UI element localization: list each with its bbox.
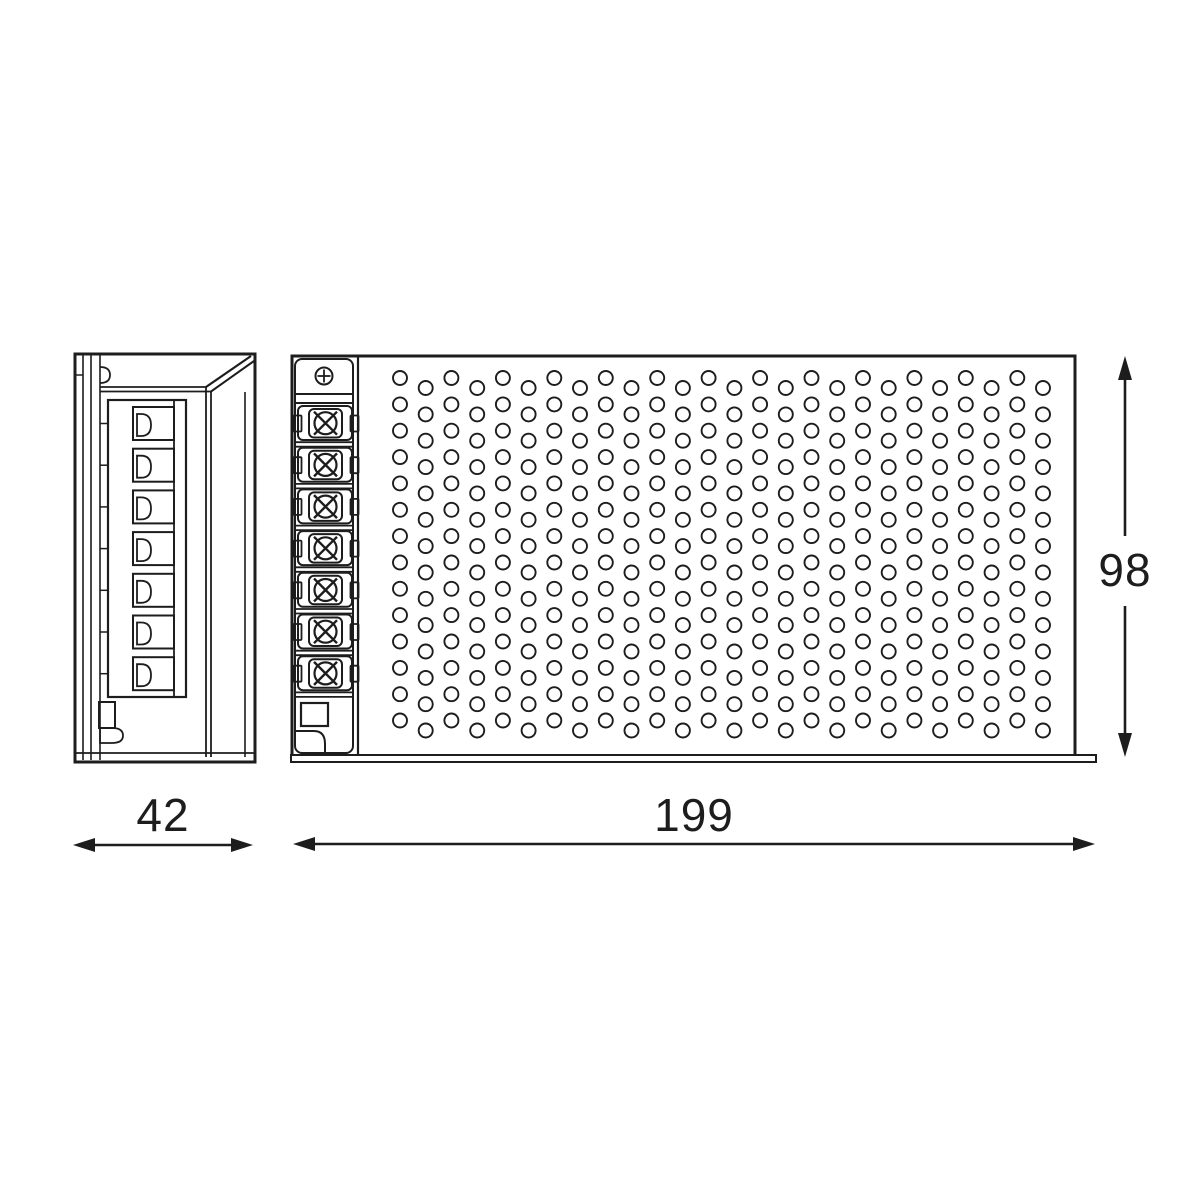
vent-hole xyxy=(625,671,639,685)
vent-hole xyxy=(753,424,767,438)
vent-hole xyxy=(985,724,999,738)
side-view xyxy=(75,354,255,762)
vent-hole xyxy=(393,476,407,490)
vent-hole xyxy=(1036,434,1050,448)
vent-hole xyxy=(599,503,613,517)
vent-hole xyxy=(599,714,613,728)
vent-hole xyxy=(907,635,921,649)
vent-hole xyxy=(805,529,819,543)
vent-hole xyxy=(727,381,741,395)
vent-hole xyxy=(882,460,896,474)
vent-hole xyxy=(830,724,844,738)
vent-hole xyxy=(702,687,716,701)
vent-hole xyxy=(444,397,458,411)
vent-hole xyxy=(753,635,767,649)
vent-hole xyxy=(547,424,561,438)
vent-hole xyxy=(573,486,587,500)
vent-hole xyxy=(959,687,973,701)
vent-hole xyxy=(522,592,536,606)
vent-hole xyxy=(985,697,999,711)
vent-hole xyxy=(522,618,536,632)
vent-hole xyxy=(393,635,407,649)
vent-hole xyxy=(625,434,639,448)
vent-hole xyxy=(676,460,690,474)
vent-hole xyxy=(985,618,999,632)
vent-hole xyxy=(779,486,793,500)
vent-hole xyxy=(496,556,510,570)
vent-hole xyxy=(702,503,716,517)
vent-hole xyxy=(625,513,639,527)
vent-hole xyxy=(625,724,639,738)
vent-hole xyxy=(470,697,484,711)
vent-hole xyxy=(573,539,587,553)
vent-hole xyxy=(573,407,587,421)
vent-hole xyxy=(676,724,690,738)
dimension-label-side-width: 42 xyxy=(136,789,189,841)
vent-hole xyxy=(985,434,999,448)
latch-icon xyxy=(137,414,151,436)
vent-hole xyxy=(856,476,870,490)
vent-hole xyxy=(779,697,793,711)
vent-hole xyxy=(676,486,690,500)
vent-hole xyxy=(547,371,561,385)
vent-hole xyxy=(650,714,664,728)
vent-hole xyxy=(702,450,716,464)
vent-hole xyxy=(830,460,844,474)
vent-hole xyxy=(599,608,613,622)
vent-hole xyxy=(907,608,921,622)
vent-hole xyxy=(496,714,510,728)
vent-hole xyxy=(727,434,741,448)
vent-hole xyxy=(522,381,536,395)
vent-hole xyxy=(933,513,947,527)
vent-hole xyxy=(599,371,613,385)
vent-hole xyxy=(753,582,767,596)
vent-hole xyxy=(419,434,433,448)
vent-hole xyxy=(573,645,587,659)
vent-hole xyxy=(1010,714,1024,728)
vent-hole xyxy=(496,661,510,675)
vent-hole xyxy=(676,618,690,632)
terminal-screw-block xyxy=(294,615,359,649)
vent-hole xyxy=(753,608,767,622)
vent-hole xyxy=(573,671,587,685)
terminal-cell xyxy=(133,490,174,523)
technical-drawing-page: 42 199 98 xyxy=(0,0,1200,1200)
vent-hole xyxy=(907,424,921,438)
vent-hole xyxy=(830,697,844,711)
vent-hole xyxy=(907,556,921,570)
vent-hole xyxy=(702,608,716,622)
vent-hole xyxy=(1036,645,1050,659)
vent-hole xyxy=(959,529,973,543)
vent-hole xyxy=(393,424,407,438)
vent-hole xyxy=(702,635,716,649)
vent-hole xyxy=(779,513,793,527)
vent-hole xyxy=(985,645,999,659)
vent-hole xyxy=(650,687,664,701)
vent-hole xyxy=(470,671,484,685)
vent-hole xyxy=(650,582,664,596)
vent-hole xyxy=(496,503,510,517)
terminal-screw-block xyxy=(294,573,359,607)
vent-hole xyxy=(522,486,536,500)
vent-hole xyxy=(419,697,433,711)
vent-hole xyxy=(547,661,561,675)
vent-hole xyxy=(650,450,664,464)
vent-hole xyxy=(1036,460,1050,474)
vent-hole xyxy=(650,476,664,490)
vent-hole xyxy=(547,687,561,701)
vent-hole xyxy=(599,556,613,570)
vent-hole xyxy=(959,556,973,570)
vent-hole xyxy=(419,539,433,553)
vent-hole xyxy=(1010,397,1024,411)
vent-hole xyxy=(882,407,896,421)
dimension-label-front-width: 199 xyxy=(654,789,734,841)
vent-hole xyxy=(805,661,819,675)
vent-hole xyxy=(573,434,587,448)
vent-hole xyxy=(779,381,793,395)
vent-hole xyxy=(753,556,767,570)
vent-hole xyxy=(599,450,613,464)
vent-hole xyxy=(753,450,767,464)
vent-hole xyxy=(444,661,458,675)
vent-hole xyxy=(805,397,819,411)
vent-hole xyxy=(753,714,767,728)
vent-hole xyxy=(985,592,999,606)
vent-hole xyxy=(676,697,690,711)
vent-hole xyxy=(599,424,613,438)
vent-hole xyxy=(444,503,458,517)
vent-hole xyxy=(856,424,870,438)
mounting-flange xyxy=(291,755,1096,762)
vent-hole xyxy=(522,645,536,659)
vent-hole xyxy=(393,529,407,543)
vent-hole xyxy=(496,476,510,490)
vent-hole xyxy=(393,661,407,675)
vent-hole xyxy=(856,450,870,464)
vent-hole xyxy=(625,566,639,580)
vent-hole xyxy=(779,618,793,632)
vent-hole xyxy=(650,424,664,438)
vent-hole xyxy=(907,582,921,596)
cable-entry-step xyxy=(295,731,325,753)
vent-hole xyxy=(1010,503,1024,517)
vent-hole xyxy=(882,671,896,685)
vent-hole xyxy=(470,381,484,395)
vent-hole xyxy=(1010,371,1024,385)
vent-hole xyxy=(393,687,407,701)
vent-hole xyxy=(830,566,844,580)
vent-hole xyxy=(1036,566,1050,580)
vent-hole xyxy=(522,434,536,448)
vent-hole xyxy=(702,582,716,596)
latch-icon xyxy=(137,664,151,686)
vent-hole xyxy=(393,450,407,464)
vent-hole xyxy=(650,397,664,411)
vent-hole xyxy=(522,671,536,685)
vent-hole xyxy=(933,460,947,474)
vent-hole xyxy=(727,460,741,474)
vent-hole xyxy=(933,539,947,553)
vent-hole xyxy=(830,381,844,395)
vent-hole xyxy=(830,434,844,448)
vent-hole xyxy=(573,381,587,395)
vent-hole xyxy=(470,618,484,632)
vent-hole xyxy=(444,582,458,596)
vent-hole xyxy=(959,582,973,596)
vent-hole xyxy=(959,450,973,464)
vent-hole xyxy=(882,486,896,500)
latch-icon xyxy=(137,581,151,603)
vent-hole xyxy=(805,635,819,649)
vent-hole xyxy=(496,608,510,622)
vent-hole xyxy=(830,407,844,421)
vent-hole xyxy=(444,424,458,438)
vent-hole xyxy=(676,539,690,553)
vent-hole xyxy=(393,582,407,596)
front-view xyxy=(291,356,1096,762)
vent-hole xyxy=(882,697,896,711)
vent-hole xyxy=(830,486,844,500)
vent-hole xyxy=(779,645,793,659)
vent-hole xyxy=(625,486,639,500)
terminal-cell xyxy=(133,407,174,440)
vent-hole xyxy=(496,371,510,385)
vent-hole xyxy=(856,503,870,517)
vent-hole xyxy=(779,539,793,553)
vent-hole xyxy=(933,592,947,606)
vent-hole xyxy=(882,724,896,738)
vent-hole xyxy=(805,582,819,596)
vent-hole xyxy=(933,671,947,685)
vent-hole xyxy=(599,476,613,490)
vent-hole xyxy=(830,618,844,632)
vent-hole xyxy=(650,608,664,622)
vent-hole xyxy=(1010,529,1024,543)
vent-hole xyxy=(959,661,973,675)
vent-hole xyxy=(1036,539,1050,553)
vent-hole xyxy=(985,566,999,580)
vent-hole xyxy=(882,618,896,632)
vent-hole xyxy=(676,434,690,448)
perforation-grid xyxy=(393,371,1050,738)
vent-hole xyxy=(959,608,973,622)
vent-hole xyxy=(805,476,819,490)
vent-hole xyxy=(625,618,639,632)
vent-hole xyxy=(419,407,433,421)
vent-hole xyxy=(753,476,767,490)
terminal-cell xyxy=(133,616,174,649)
terminal-cell xyxy=(133,449,174,482)
vent-hole xyxy=(702,714,716,728)
vent-hole xyxy=(470,592,484,606)
vent-hole xyxy=(625,539,639,553)
vent-hole xyxy=(547,714,561,728)
vent-hole xyxy=(702,476,716,490)
terminal-screw-block xyxy=(294,656,359,690)
vent-hole xyxy=(470,539,484,553)
vent-hole xyxy=(1036,381,1050,395)
vent-hole xyxy=(985,539,999,553)
vent-hole xyxy=(470,486,484,500)
terminal-screw-block xyxy=(294,489,359,523)
vent-hole xyxy=(496,582,510,596)
vent-hole xyxy=(830,513,844,527)
vent-hole xyxy=(882,539,896,553)
vent-hole xyxy=(419,724,433,738)
vent-hole xyxy=(907,661,921,675)
dimension-label-front-height: 98 xyxy=(1098,544,1151,596)
terminal-cell xyxy=(133,657,174,690)
vent-hole xyxy=(470,645,484,659)
vent-hole xyxy=(547,397,561,411)
vent-hole xyxy=(547,503,561,517)
vent-hole xyxy=(419,618,433,632)
vent-hole xyxy=(727,539,741,553)
vent-hole xyxy=(599,582,613,596)
vent-hole xyxy=(470,407,484,421)
vent-hole xyxy=(496,450,510,464)
vent-hole xyxy=(676,513,690,527)
vent-hole xyxy=(1036,671,1050,685)
vent-hole xyxy=(573,592,587,606)
vent-hole xyxy=(1036,724,1050,738)
vent-hole xyxy=(547,582,561,596)
vent-hole xyxy=(650,661,664,675)
vent-hole xyxy=(933,407,947,421)
vent-hole xyxy=(650,529,664,543)
vent-hole xyxy=(830,539,844,553)
vent-hole xyxy=(727,486,741,500)
vent-hole xyxy=(830,645,844,659)
vent-hole xyxy=(727,407,741,421)
vent-hole xyxy=(753,529,767,543)
vent-hole xyxy=(625,697,639,711)
vent-hole xyxy=(805,714,819,728)
vent-hole xyxy=(522,697,536,711)
vent-hole xyxy=(419,486,433,500)
vent-hole xyxy=(779,407,793,421)
vent-hole xyxy=(496,397,510,411)
vent-hole xyxy=(1010,556,1024,570)
vent-hole xyxy=(856,582,870,596)
vent-hole xyxy=(907,503,921,517)
vent-hole xyxy=(393,503,407,517)
vent-hole xyxy=(676,381,690,395)
vent-hole xyxy=(470,566,484,580)
vent-hole xyxy=(599,397,613,411)
vent-hole xyxy=(444,635,458,649)
vent-hole xyxy=(625,645,639,659)
vent-hole xyxy=(779,592,793,606)
vent-hole xyxy=(1036,697,1050,711)
vent-hole xyxy=(856,661,870,675)
vent-hole xyxy=(702,371,716,385)
terminal-screw-block xyxy=(294,448,359,482)
vent-hole xyxy=(985,486,999,500)
vent-hole xyxy=(1010,450,1024,464)
vent-hole xyxy=(779,460,793,474)
vent-hole xyxy=(907,371,921,385)
vent-hole xyxy=(805,424,819,438)
vent-hole xyxy=(805,450,819,464)
vent-hole xyxy=(573,513,587,527)
vent-hole xyxy=(959,424,973,438)
vent-hole xyxy=(573,697,587,711)
vent-hole xyxy=(444,529,458,543)
vent-hole xyxy=(625,460,639,474)
vent-hole xyxy=(856,397,870,411)
vent-hole xyxy=(727,566,741,580)
vent-hole xyxy=(727,697,741,711)
vent-hole xyxy=(779,434,793,448)
vent-hole xyxy=(444,476,458,490)
dimension-drawing: 42 199 98 xyxy=(0,0,1200,1200)
vent-hole xyxy=(547,476,561,490)
vent-hole xyxy=(727,618,741,632)
vent-hole xyxy=(650,371,664,385)
vent-hole xyxy=(882,381,896,395)
vent-hole xyxy=(856,635,870,649)
vent-hole xyxy=(727,513,741,527)
latch-icon xyxy=(137,623,151,645)
vent-hole xyxy=(444,371,458,385)
vent-hole xyxy=(522,513,536,527)
vent-hole xyxy=(830,671,844,685)
vent-hole xyxy=(907,476,921,490)
vent-hole xyxy=(882,645,896,659)
vent-hole xyxy=(522,539,536,553)
vent-hole xyxy=(753,661,767,675)
vent-hole xyxy=(573,460,587,474)
vent-hole xyxy=(470,513,484,527)
vent-hole xyxy=(522,724,536,738)
vent-hole xyxy=(393,714,407,728)
latch-icon xyxy=(137,539,151,561)
vent-hole xyxy=(1010,635,1024,649)
vent-hole xyxy=(599,529,613,543)
vent-hole xyxy=(985,513,999,527)
vent-hole xyxy=(985,407,999,421)
vent-hole xyxy=(547,529,561,543)
vent-hole xyxy=(496,635,510,649)
vent-hole xyxy=(419,460,433,474)
vent-hole xyxy=(907,687,921,701)
vent-hole xyxy=(702,424,716,438)
vent-hole xyxy=(547,635,561,649)
vent-hole xyxy=(1010,582,1024,596)
vent-hole xyxy=(882,592,896,606)
vent-hole xyxy=(959,397,973,411)
vent-hole xyxy=(676,645,690,659)
vent-hole xyxy=(856,608,870,622)
knockout-square xyxy=(301,703,328,726)
vent-hole xyxy=(856,687,870,701)
terminal-cell xyxy=(133,574,174,607)
vent-hole xyxy=(702,397,716,411)
vent-hole xyxy=(1036,618,1050,632)
vent-hole xyxy=(753,687,767,701)
vent-hole xyxy=(393,556,407,570)
vent-hole xyxy=(727,671,741,685)
vent-hole xyxy=(933,381,947,395)
vent-hole xyxy=(805,608,819,622)
mount-screw xyxy=(316,368,333,385)
vent-hole xyxy=(779,724,793,738)
vent-hole xyxy=(727,645,741,659)
